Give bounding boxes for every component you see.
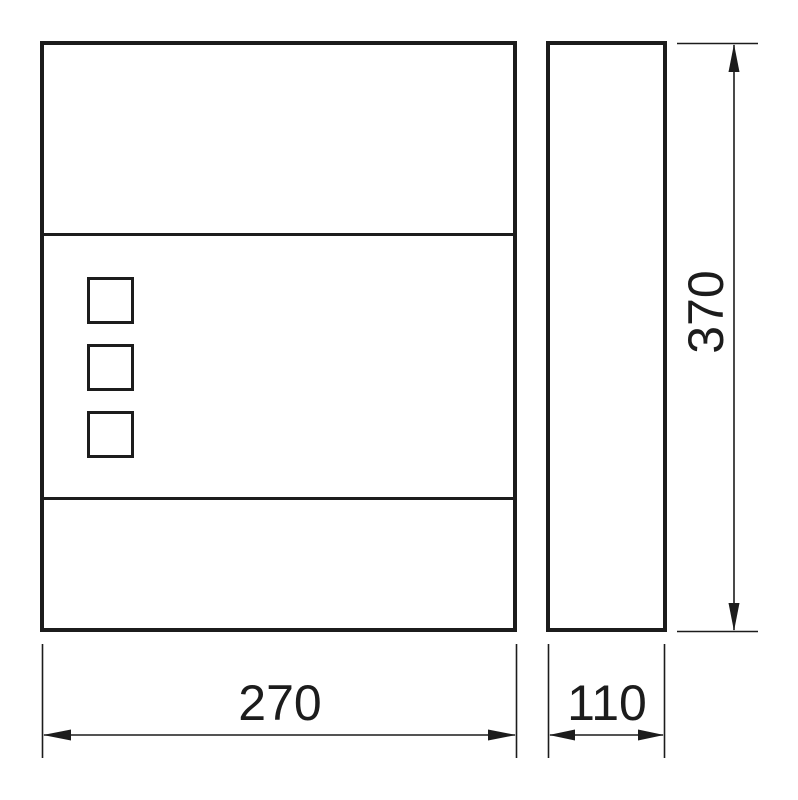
width-arrow-right-icon bbox=[488, 730, 516, 741]
front-view-window-slot-2 bbox=[87, 344, 134, 391]
front-view-window-slot-1 bbox=[87, 277, 134, 324]
side-view-outline bbox=[546, 41, 667, 632]
depth-arrow-right-icon bbox=[638, 730, 664, 741]
height-arrow-down-icon bbox=[729, 603, 740, 631]
width-arrow-left-icon bbox=[43, 730, 71, 741]
depth-arrow-left-icon bbox=[549, 730, 575, 741]
technical-drawing-canvas: 270 110 370 bbox=[0, 0, 798, 800]
dimension-height-label: 370 bbox=[681, 252, 731, 372]
dimension-width-label: 270 bbox=[190, 678, 370, 728]
front-view-outline bbox=[40, 41, 517, 632]
height-arrow-up-icon bbox=[729, 44, 740, 72]
dimension-depth-label: 110 bbox=[517, 678, 697, 728]
front-view-lower-divider-line bbox=[44, 497, 513, 500]
front-view-window-slot-3 bbox=[87, 411, 134, 458]
front-view-upper-divider-line bbox=[44, 233, 513, 236]
